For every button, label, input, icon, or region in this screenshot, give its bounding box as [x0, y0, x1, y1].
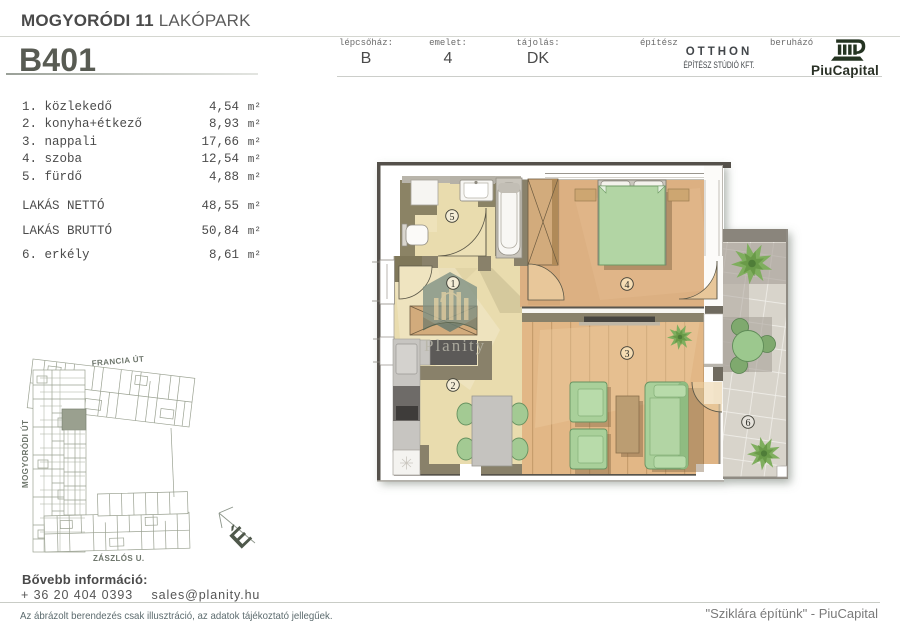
svg-text:3: 3 — [625, 349, 630, 360]
svg-text:4: 4 — [625, 280, 630, 291]
svg-text:FRANCIA ÚT: FRANCIA ÚT — [91, 354, 144, 368]
svg-text:É: É — [224, 521, 257, 555]
svg-text:2: 2 — [451, 381, 456, 392]
svg-text:1: 1 — [451, 279, 456, 290]
svg-text:Planity: Planity — [424, 336, 486, 355]
svg-text:5: 5 — [450, 212, 455, 223]
svg-text:ZÁSZLÓS U.: ZÁSZLÓS U. — [93, 554, 145, 563]
svg-text:6: 6 — [746, 418, 751, 429]
svg-text:MOGYORÓDI ÚT: MOGYORÓDI ÚT — [21, 420, 30, 488]
